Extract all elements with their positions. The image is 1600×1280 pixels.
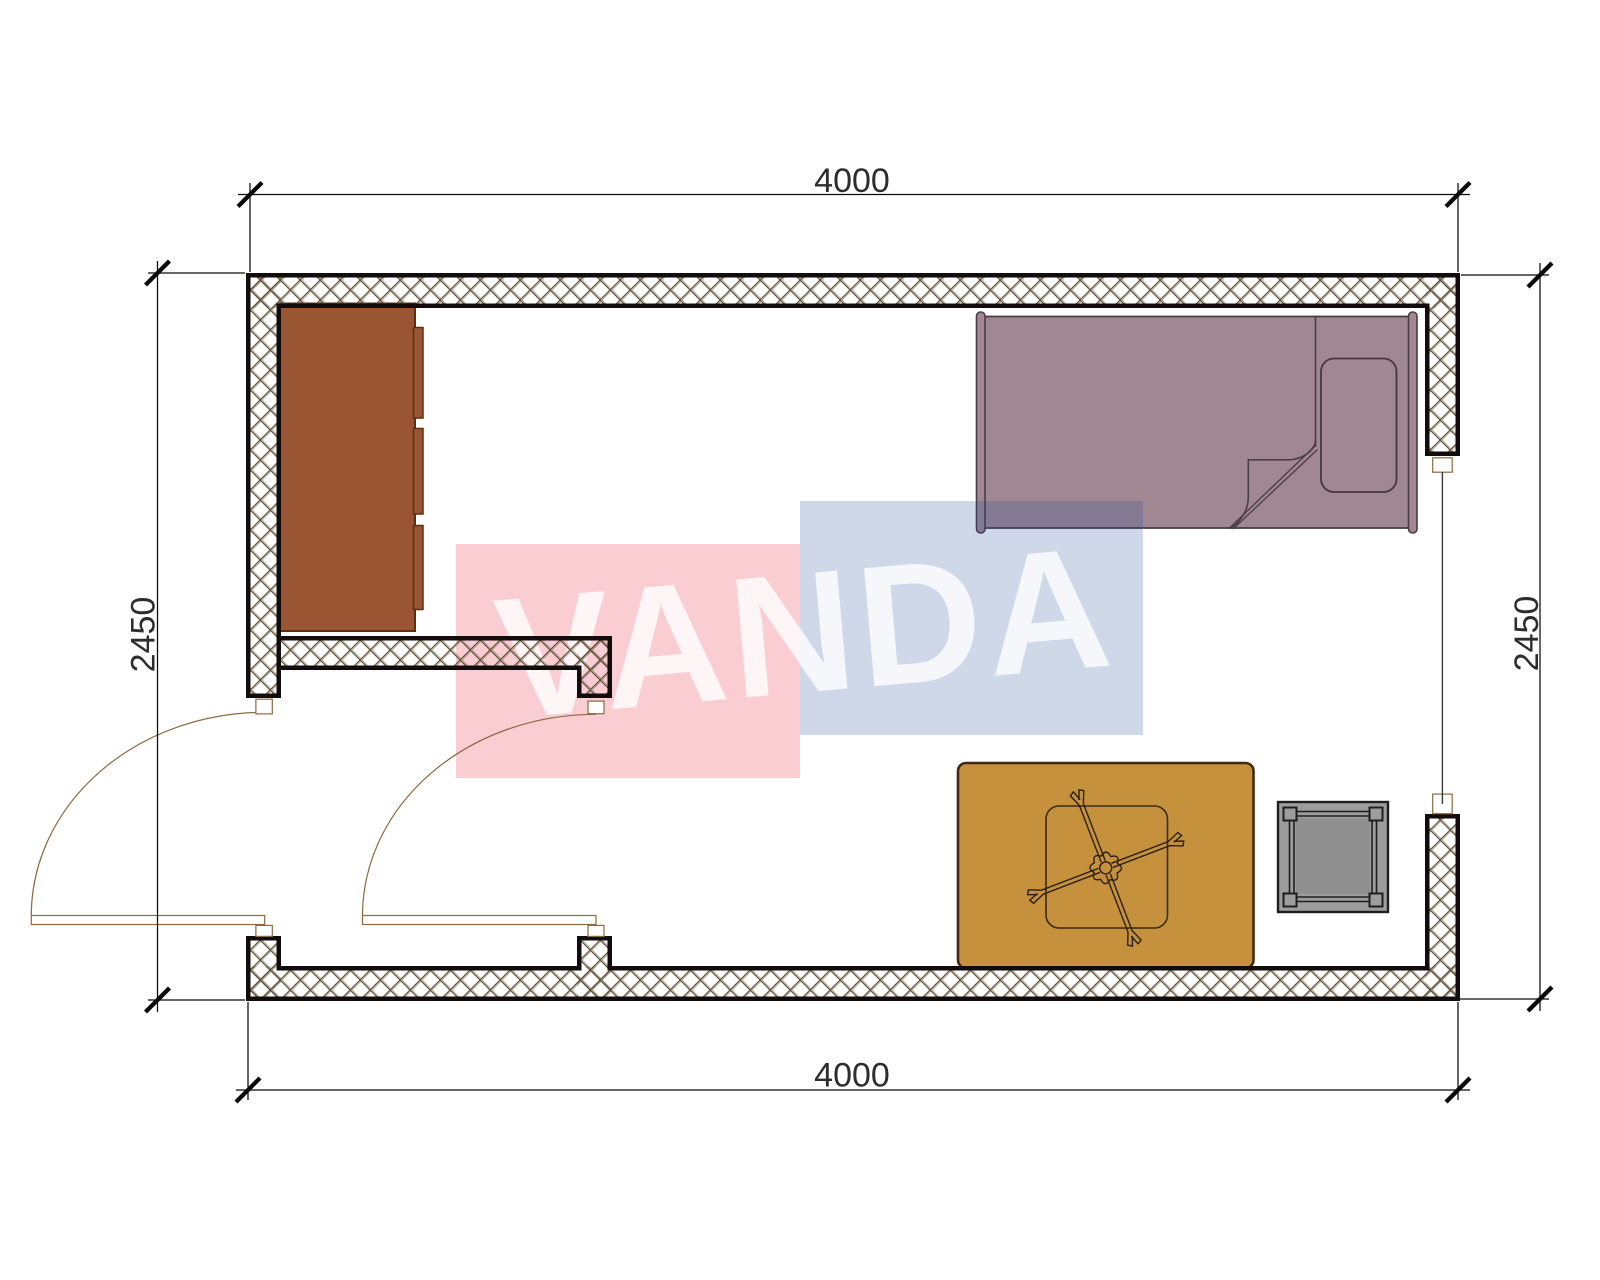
svg-text:4000: 4000: [814, 1057, 890, 1095]
svg-text:2450: 2450: [125, 597, 163, 673]
svg-text:4000: 4000: [814, 162, 890, 200]
svg-text:2450: 2450: [1508, 596, 1546, 672]
